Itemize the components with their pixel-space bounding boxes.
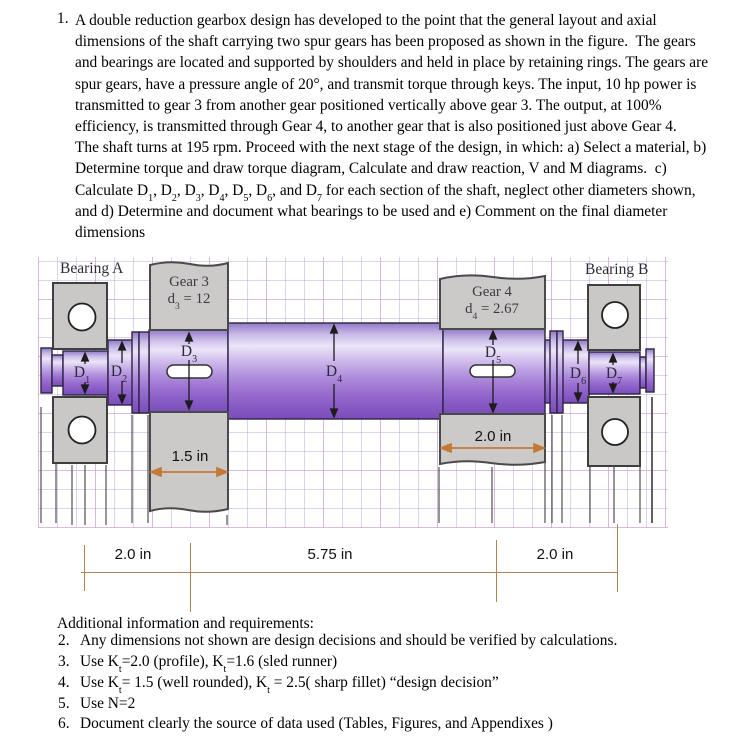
d7-label: D7 xyxy=(606,365,622,383)
requirement-number: 2. xyxy=(58,632,70,650)
dimension-tick-gear4 xyxy=(496,540,497,602)
dimension-chain-line xyxy=(81,572,617,573)
retaining-ring-a2 xyxy=(139,332,149,413)
bearing-a-label: Bearing A xyxy=(60,260,123,278)
shaft-left-flange xyxy=(41,348,52,393)
problem-number: 1. xyxy=(57,10,69,28)
dimension-tick-bearing-b xyxy=(617,524,618,592)
requirement-text: Use Kt= 1.5 (well rounded), Kt = 2.5( sh… xyxy=(80,674,499,692)
requirement-text: Use Kt=2.0 (profile), Kt=1.6 (sled runne… xyxy=(80,653,337,671)
d2-label: D2 xyxy=(111,363,127,381)
problem-text-line: and d) Determine and document what beari… xyxy=(75,201,725,222)
gear3-hub-width-label: 1.5 in xyxy=(172,448,209,465)
problem-text-line: dimensions of the shaft carrying two spu… xyxy=(75,31,725,52)
gear4-hub-width-label: 2.0 in xyxy=(475,428,512,445)
shaft-sections xyxy=(41,323,654,419)
d1-label: D1 xyxy=(74,364,90,382)
span-middle-label: 5.75 in xyxy=(307,546,352,563)
additional-info-heading: Additional information and requirements: xyxy=(57,615,314,633)
gear3-caption: Gear 3 d3 = 12 xyxy=(134,274,244,308)
problem-text-line: Determine torque and draw torque diagram… xyxy=(75,158,725,179)
problem-text-line: The shaft turns at 195 rpm. Proceed with… xyxy=(75,137,725,158)
requirement-number: 4. xyxy=(58,674,70,692)
span-left-label: 2.0 in xyxy=(115,546,152,563)
d3-label: D3 xyxy=(181,343,197,361)
dimension-tick-bearing-a xyxy=(84,545,85,591)
problem-text-line: efficiency, is transmitted through Gear … xyxy=(75,116,725,137)
shaft-drawing xyxy=(38,257,668,528)
retaining-ring-b2 xyxy=(557,331,563,413)
requirement-text: Document clearly the source of data used… xyxy=(80,715,553,733)
shaft-right-flange xyxy=(646,349,654,392)
problem-text-line: dimensions xyxy=(75,222,725,243)
d6-label: D6 xyxy=(570,365,586,383)
requirement-number: 3. xyxy=(58,653,70,671)
document-page: { "problem": { "number": "1.", "lines": … xyxy=(0,0,732,743)
requirement-text: Any dimensions not shown are design deci… xyxy=(80,632,617,650)
bearing-b-lower-ball xyxy=(602,419,628,445)
dimension-tick-gear3 xyxy=(190,543,191,612)
requirement-text: Use N=2 xyxy=(80,695,135,713)
gear4-spec: d4 = 2.67 xyxy=(437,301,547,318)
problem-text-line: Calculate D1, D2, D3, D4, D5, D6, and D7… xyxy=(75,180,725,201)
gear4-caption: Gear 4 d4 = 2.67 xyxy=(437,284,547,318)
retaining-ring-a1 xyxy=(132,332,139,413)
gear3-name: Gear 3 xyxy=(134,274,244,291)
requirement-number: 6. xyxy=(58,715,70,733)
problem-text-line: and bearings are located and supported b… xyxy=(75,52,725,73)
span-right-label: 2.0 in xyxy=(537,546,574,563)
requirement-number: 5. xyxy=(58,695,70,713)
gear4-name: Gear 4 xyxy=(437,284,547,301)
problem-text-line: A double reduction gearbox design has de… xyxy=(75,10,725,31)
shaft-layout-figure: Bearing A Bearing B Gear 3 d3 = 12 Gear … xyxy=(38,257,668,528)
problem-statement: A double reduction gearbox design has de… xyxy=(75,10,725,243)
bearing-b-label: Bearing B xyxy=(585,261,648,279)
gear3-spec: d3 = 12 xyxy=(134,291,244,308)
bearing-a-upper-ball xyxy=(69,304,96,331)
d4-label: D4 xyxy=(326,363,342,381)
d5-label: D5 xyxy=(485,344,501,362)
problem-text-line: spur gears, have a pressure angle of 20°… xyxy=(75,74,725,95)
shaft-right-stub xyxy=(640,357,646,388)
bearing-b-upper-ball xyxy=(602,302,628,328)
problem-text-line: transmitted to gear 3 from another gear … xyxy=(75,95,725,116)
shaft-left-stub xyxy=(52,355,63,386)
retaining-ring-b1 xyxy=(550,331,557,413)
bearing-a-lower-ball xyxy=(69,417,96,444)
